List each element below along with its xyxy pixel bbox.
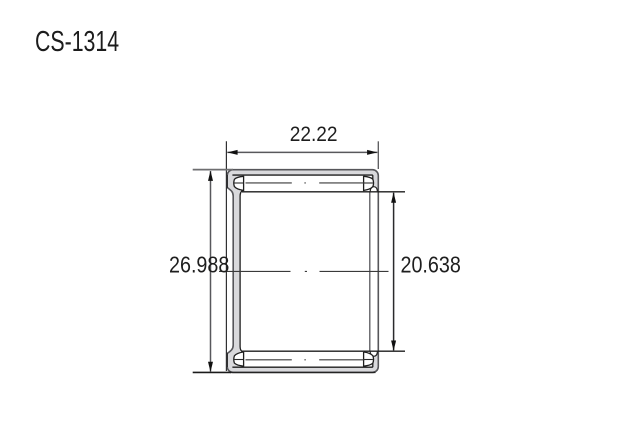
svg-text:26.988: 26.988 [169,251,229,278]
svg-text:22.22: 22.22 [290,123,338,146]
svg-text:20.638: 20.638 [401,251,461,278]
